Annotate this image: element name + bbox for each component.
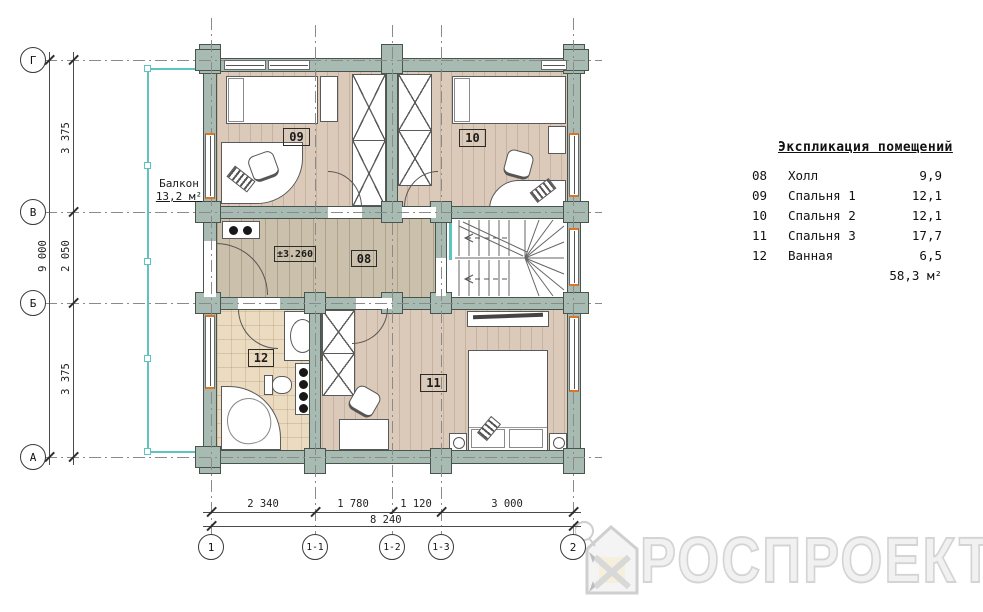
nightstand-09 — [320, 76, 338, 122]
dim-left-seg2: 2 050 — [60, 219, 72, 293]
window-left-bath — [205, 315, 215, 389]
balcony-post — [144, 448, 151, 455]
room-label-10: 10 — [459, 129, 486, 147]
wall-joint — [563, 448, 585, 474]
pillow-11-right — [509, 429, 543, 448]
balcony-post — [144, 65, 151, 72]
axis-line-1-1 — [315, 25, 316, 535]
watermark-house-icon — [575, 517, 645, 597]
schedule-row: 10 Спальня 2 12,1 — [752, 208, 942, 226]
axis-line-1-2 — [392, 25, 393, 535]
room-schedule-title: Экспликация помещений — [778, 140, 953, 155]
window-top-10 — [541, 60, 567, 70]
axis-bubble-1-2: 1-2 — [379, 534, 405, 560]
axis-line-1-3 — [441, 25, 442, 535]
shelf-dot — [299, 392, 308, 401]
window-right-10 — [569, 133, 579, 197]
window-top-09a — [224, 60, 266, 70]
schedule-row: 08 Холл 9,9 — [752, 168, 942, 186]
axis-line-1 — [211, 18, 212, 535]
axis-line-a — [45, 457, 602, 458]
balcony-area: 13,2 м² — [148, 190, 210, 203]
balcony-name: Балкон — [148, 177, 210, 190]
lamp — [453, 437, 465, 449]
room-label-11: 11 — [420, 374, 447, 392]
room-area: 17,7 — [912, 228, 942, 243]
floor-plan-sheet: РОСПРОЕКТ Балкон 13,2 м² — [0, 0, 983, 612]
axis-bubble-2: 2 — [560, 534, 586, 560]
pillow-09 — [228, 78, 244, 122]
wardrobe-section — [323, 354, 354, 396]
room-name: Спальня 2 — [788, 208, 856, 223]
axis-bubble-a: А — [20, 444, 46, 470]
dim-line-left-overall — [49, 52, 50, 465]
room-label-12: 12 — [248, 349, 274, 367]
axis-line-b — [45, 303, 602, 304]
axis-bubble-b: Б — [20, 290, 46, 316]
staircase — [447, 218, 567, 298]
room-area: 12,1 — [912, 188, 942, 203]
shelf-dot — [299, 380, 308, 389]
axis-bubble-1-3: 1-3 — [428, 534, 454, 560]
room-area: 12,1 — [912, 208, 942, 223]
dim-bottom-overall: 8 240 — [368, 514, 404, 526]
dim-left-overall: 9 000 — [37, 219, 49, 293]
room-number: 08 — [752, 168, 767, 183]
nightstand-10 — [548, 126, 566, 154]
balcony-post — [144, 162, 151, 169]
room-name: Ванная — [788, 248, 833, 263]
wardrobe-section — [353, 75, 385, 141]
room-name: Холл — [788, 168, 818, 183]
desk-11 — [339, 419, 389, 450]
schedule-total-row: 58,3 м² — [752, 268, 942, 286]
dim-line-left-segments — [73, 52, 74, 465]
schedule-row: 12 Ванная 6,5 — [752, 248, 942, 266]
room-schedule: Экспликация помещений 08 Холл 9,9 09 Спа… — [752, 140, 944, 280]
knob — [229, 226, 238, 235]
axis-bubble-v: В — [20, 199, 46, 225]
axis-bubble-1-1: 1-1 — [302, 534, 328, 560]
wardrobe-10 — [398, 74, 432, 186]
axis-bubble-1: 1 — [198, 534, 224, 560]
wardrobe-09 — [352, 74, 386, 206]
room-label-09: 09 — [283, 128, 310, 146]
hall-cabinet — [222, 221, 260, 239]
toilet-bowl — [272, 376, 292, 394]
axis-bubble-g: Г — [20, 47, 46, 73]
dim-line-bottom-overall — [203, 526, 581, 527]
room-area: 6,5 — [919, 248, 942, 263]
room-number: 11 — [752, 228, 767, 243]
balcony-post — [144, 355, 151, 362]
room-number: 10 — [752, 208, 767, 223]
schedule-total: 58,3 м² — [889, 268, 942, 283]
wardrobe-section — [399, 75, 431, 131]
balcony-post — [144, 258, 151, 265]
room-name: Спальня 3 — [788, 228, 856, 243]
axis-line-v — [45, 212, 602, 213]
window-right-stair — [569, 228, 579, 286]
elevation-mark: ±3.260 — [274, 246, 316, 262]
room-number: 12 — [752, 248, 767, 263]
dim-bottom-seg4: 3 000 — [477, 498, 537, 510]
room-number: 09 — [752, 188, 767, 203]
room-name: Спальня 1 — [788, 188, 856, 203]
shelf-dot — [299, 404, 308, 413]
schedule-row: 09 Спальня 1 12,1 — [752, 188, 942, 206]
door-opening-balcony — [204, 241, 216, 297]
dim-bottom-seg1: 2 340 — [233, 498, 293, 510]
wardrobe-section — [323, 311, 354, 354]
axis-line-g — [45, 60, 602, 61]
pillow-10 — [454, 78, 470, 122]
window-top-09b — [268, 60, 310, 70]
schedule-row: 11 Спальня 3 17,7 — [752, 228, 942, 246]
room-label-08: 08 — [351, 250, 377, 267]
balcony-label: Балкон 13,2 м² — [148, 177, 210, 203]
shelf-dot — [299, 368, 308, 377]
watermark-brand-text: РОСПРОЕКТ — [640, 524, 983, 597]
dim-left-seg1: 3 375 — [60, 101, 72, 175]
window-right-11 — [569, 316, 579, 392]
knob — [243, 226, 252, 235]
dim-left-seg3: 3 375 — [60, 342, 72, 416]
dim-bottom-seg3: 1 120 — [386, 498, 446, 510]
room-area: 9,9 — [919, 168, 942, 183]
dim-bottom-seg2: 1 780 — [323, 498, 383, 510]
wardrobe-11 — [322, 310, 355, 396]
